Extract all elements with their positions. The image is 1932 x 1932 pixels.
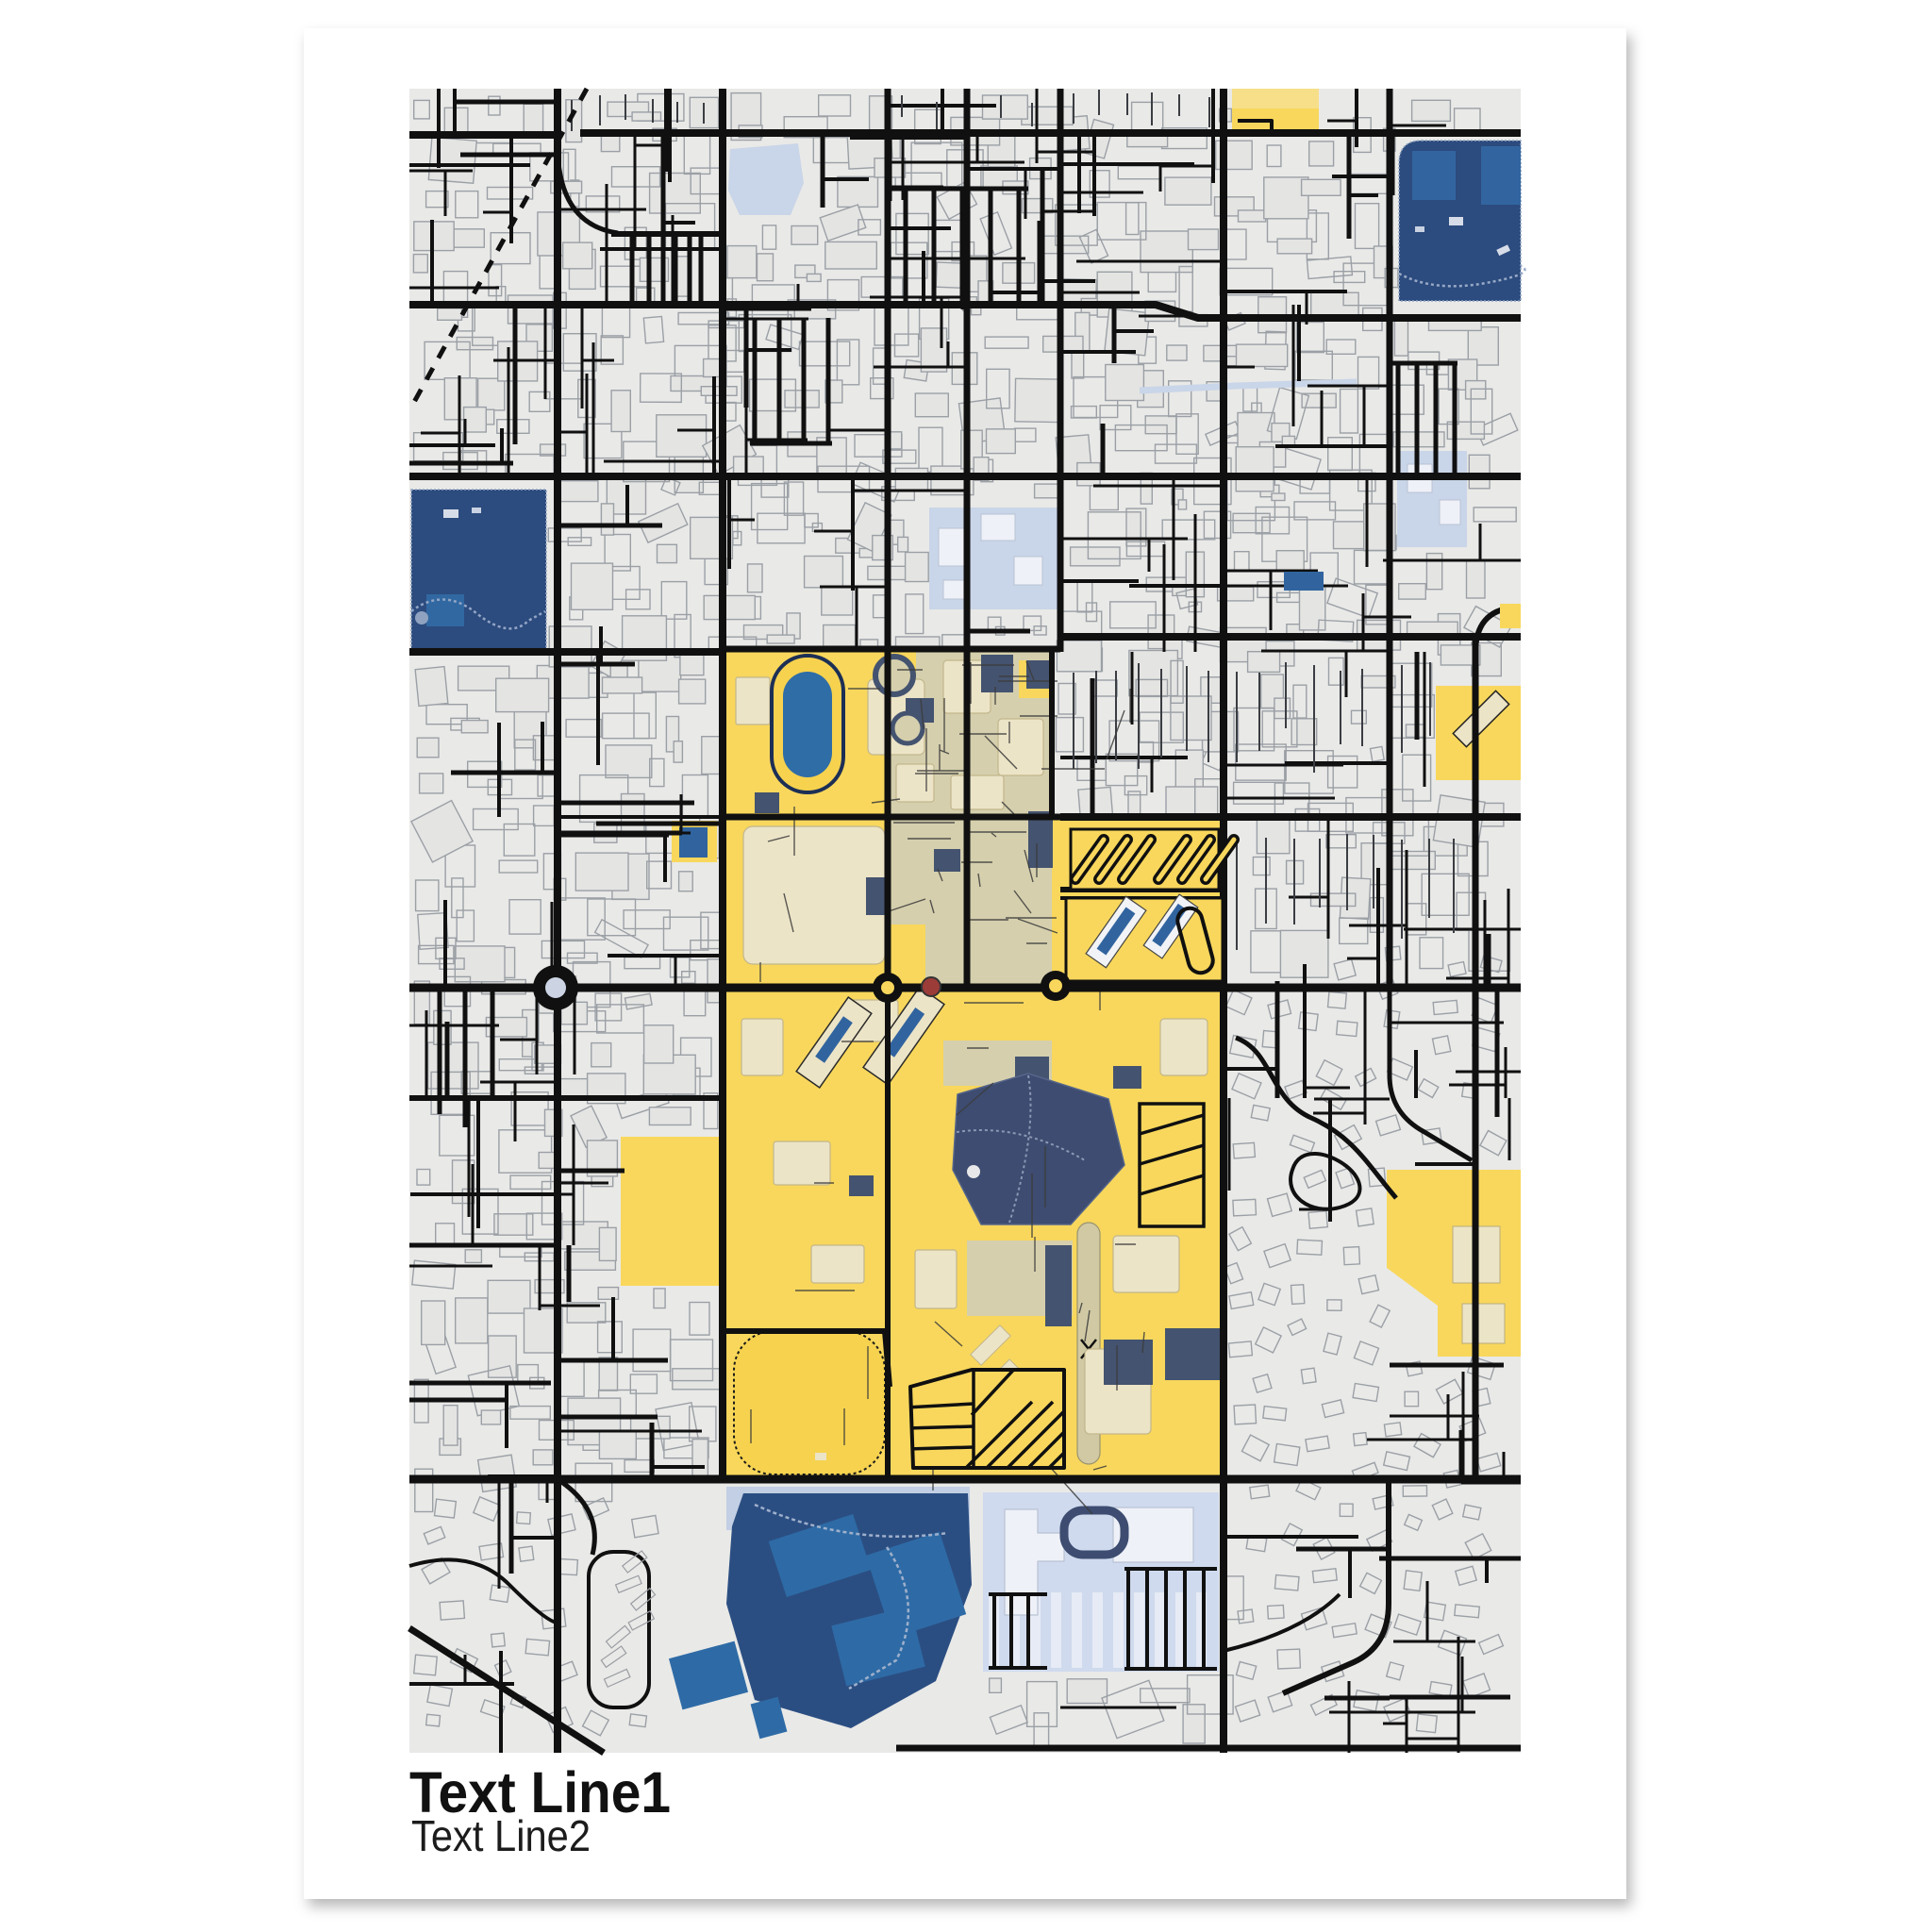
svg-text:Text Line2: Text Line2 [411,1811,591,1860]
